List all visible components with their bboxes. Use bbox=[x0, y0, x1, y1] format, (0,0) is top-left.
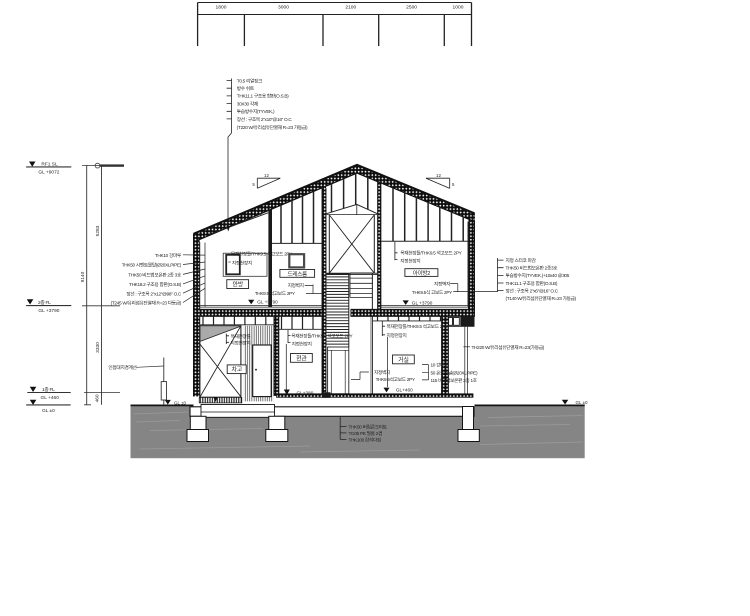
svg-text:GL+380: GL+380 bbox=[297, 390, 314, 395]
svg-text:차고: 차고 bbox=[231, 366, 242, 374]
svg-text:T0.05 PE 필름 2겹: T0.05 PE 필름 2겹 bbox=[349, 430, 383, 436]
svg-text:GL +460: GL +460 bbox=[41, 395, 60, 401]
svg-text:장선 : 구조목 2"x12"@98" O.C: 장선 : 구조목 2"x12"@98" O.C bbox=[126, 290, 182, 297]
svg-text:THK11.1 구조용 합판(O.S.B): THK11.1 구조용 합판(O.S.B) bbox=[237, 93, 289, 100]
svg-text:GL +3790: GL +3790 bbox=[257, 300, 278, 305]
svg-text:장선 : 구조목 2"x10"@16" O.C: 장선 : 구조목 2"x10"@16" O.C bbox=[237, 116, 293, 123]
svg-text:(T220 W/유리섬유단열재 R=23 가등급): (T220 W/유리섬유단열재 R=23 가등급) bbox=[237, 124, 308, 131]
svg-text:5283: 5283 bbox=[95, 225, 101, 236]
svg-text:THK9.5식 고보드 2PY: THK9.5식 고보드 2PY bbox=[412, 289, 453, 296]
svg-text:3330: 3330 bbox=[95, 342, 101, 353]
svg-text:THK50 비드법보온판 2종 3호: THK50 비드법보온판 2종 3호 bbox=[128, 272, 182, 279]
svg-text:지정천장지: 지정천장지 bbox=[292, 340, 312, 347]
svg-text:장선 : 구조목 2"x6"@16" O.C: 장선 : 구조목 2"x6"@16" O.C bbox=[506, 287, 559, 294]
svg-text:GL +3790: GL +3790 bbox=[38, 308, 59, 314]
svg-text:목재천장틀/THK9.5 석고보드 2PY: 목재천장틀/THK9.5 석고보드 2PY bbox=[231, 250, 293, 257]
svg-text:목재천장틀: 목재천장틀 bbox=[231, 333, 252, 340]
svg-text:투습방수지(TYVEK.)+10x40 @305: 투습방수지(TYVEK.)+10x40 @305 bbox=[506, 272, 570, 279]
svg-text:지정천장지: 지정천장지 bbox=[231, 339, 251, 346]
svg-text:현관: 현관 bbox=[296, 354, 307, 362]
svg-text:460: 460 bbox=[95, 394, 101, 402]
svg-text:GL ±0: GL ±0 bbox=[42, 408, 55, 414]
svg-text:3000: 3000 bbox=[278, 5, 289, 11]
svg-text:9140: 9140 bbox=[80, 271, 86, 282]
svg-text:지정벽지: 지정벽지 bbox=[434, 280, 450, 287]
svg-text:1800: 1800 bbox=[216, 5, 227, 11]
svg-text:THK11.1 구조용 합판(O.S.B): THK11.1 구조용 합판(O.S.B) bbox=[506, 280, 558, 287]
svg-text:지정벽지: 지정벽지 bbox=[288, 282, 304, 289]
svg-text:2100: 2100 bbox=[345, 5, 356, 11]
svg-text:(T245 W/유리섬유단열재 R=23 다등급): (T245 W/유리섬유단열재 R=23 다등급) bbox=[111, 300, 182, 307]
svg-text:드레스룸: 드레스룸 bbox=[288, 270, 308, 278]
svg-text:THK50 비드법보온판 2종3호: THK50 비드법보온판 2종3호 bbox=[506, 265, 559, 272]
svg-text:2500: 2500 bbox=[406, 5, 417, 11]
svg-text:(T140 W/유리섬유단열재 R=23 가등급): (T140 W/유리섬유단열재 R=23 가등급) bbox=[506, 295, 577, 302]
svg-text:GL ±0: GL ±0 bbox=[576, 400, 589, 405]
svg-text:방수 쉬트: 방수 쉬트 bbox=[237, 85, 255, 92]
svg-text:30X30 각재: 30X30 각재 bbox=[237, 100, 258, 107]
svg-text:GL +9072: GL +9072 bbox=[38, 169, 59, 175]
svg-text:THK9.5 석고보드 2PY: THK9.5 석고보드 2PY bbox=[255, 290, 296, 297]
svg-text:THK10 강마루: THK10 강마루 bbox=[155, 252, 182, 259]
svg-text:THK9.5석고보드 2PY: THK9.5석고보드 2PY bbox=[376, 376, 416, 383]
svg-text:THK100 잡석다짐: THK100 잡석다짐 bbox=[349, 436, 381, 443]
svg-text:GL +3790: GL +3790 bbox=[412, 301, 433, 306]
svg-text:투습방수지(TYVEK,): 투습방수지(TYVEK,) bbox=[237, 108, 275, 115]
svg-text:지정천장지: 지정천장지 bbox=[387, 332, 407, 339]
svg-text:목재천장틀/THK9.5 석고보드 2PY: 목재천장틀/THK9.5 석고보드 2PY bbox=[291, 333, 353, 340]
svg-text:지정 스터코 마감: 지정 스터코 마감 bbox=[506, 257, 537, 264]
svg-text:12: 12 bbox=[436, 173, 441, 178]
svg-text:GL ±0: GL ±0 bbox=[174, 400, 187, 405]
svg-text:아이방2: 아이방2 bbox=[413, 269, 431, 277]
svg-text:THK18.2 구조용 합판(O.S.B): THK18.2 구조용 합판(O.S.B) bbox=[129, 281, 182, 288]
svg-text:GL+460: GL+460 bbox=[396, 388, 413, 393]
svg-text:T0.5 리얼징크: T0.5 리얼징크 bbox=[237, 77, 263, 84]
svg-text:10 강마루: 10 강마루 bbox=[431, 362, 450, 369]
svg-text:지정천장지: 지정천장지 bbox=[232, 259, 252, 266]
svg-text:115 비드법보온판 2종 1호: 115 비드법보온판 2종 1호 bbox=[431, 377, 478, 384]
svg-text:12: 12 bbox=[264, 173, 269, 178]
svg-text:50 온돌패널(Ø20XLPIPE): 50 온돌패널(Ø20XLPIPE) bbox=[431, 369, 479, 376]
svg-text:인접대지경계선: 인접대지경계선 bbox=[108, 364, 136, 371]
svg-text:TH220 W/유리섬유단열재 R=23(가등급): TH220 W/유리섬유단열재 R=23(가등급) bbox=[472, 344, 545, 351]
svg-text:목재천장틀/THK9.5 석고보드 2PY: 목재천장틀/THK9.5 석고보드 2PY bbox=[387, 323, 449, 330]
svg-text:목재천장틀/THK9.5 석고보드 2PY: 목재천장틀/THK9.5 석고보드 2PY bbox=[400, 250, 462, 257]
svg-text:거실: 거실 bbox=[398, 356, 408, 364]
svg-text:THK50 시멘트몰탈(Ø20XLPIPE): THK50 시멘트몰탈(Ø20XLPIPE) bbox=[122, 262, 182, 269]
svg-text:1000: 1000 bbox=[453, 5, 464, 11]
svg-text:THK50 버림콘크리트: THK50 버림콘크리트 bbox=[349, 423, 388, 430]
svg-text:안방: 안방 bbox=[232, 281, 243, 289]
svg-text:지정천장지: 지정천장지 bbox=[400, 257, 420, 264]
svg-text:2층 FL: 2층 FL bbox=[38, 299, 51, 306]
